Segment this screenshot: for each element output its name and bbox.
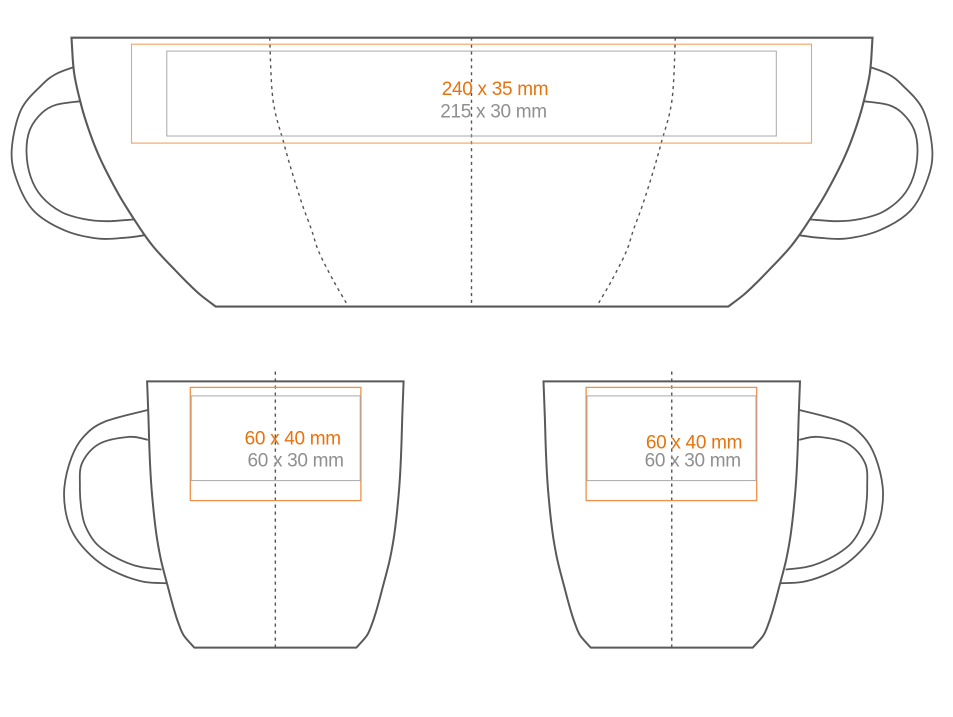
svg-text:60 x 30 mm: 60 x 30 mm [247, 451, 343, 472]
svg-text:60 x 40 mm: 60 x 40 mm [245, 429, 341, 450]
svg-text:60 x 30 mm: 60 x 30 mm [645, 451, 741, 472]
svg-text:240 x 35 mm: 240 x 35 mm [442, 79, 549, 100]
svg-text:215 x 30 mm: 215 x 30 mm [440, 101, 547, 122]
